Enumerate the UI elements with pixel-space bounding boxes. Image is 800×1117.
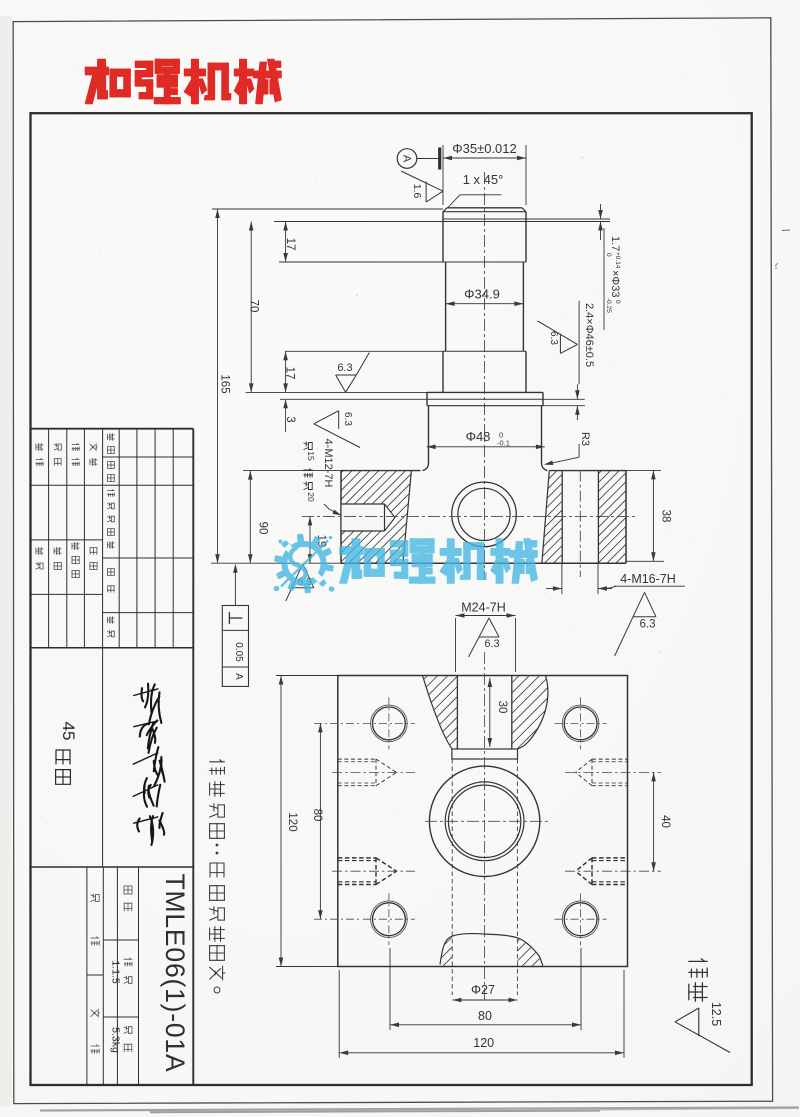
- svg-text:+0.14: +0.14: [614, 252, 621, 269]
- svg-text:×Φ33: ×Φ33: [609, 270, 621, 297]
- svg-text:20: 20: [306, 492, 316, 502]
- svg-text:90: 90: [257, 522, 269, 535]
- svg-text:-0.25: -0.25: [605, 298, 612, 313]
- svg-text:-0.1: -0.1: [497, 439, 510, 448]
- svg-text:30: 30: [496, 701, 508, 714]
- svg-text:45: 45: [59, 722, 78, 741]
- svg-text:M24-7H: M24-7H: [461, 601, 505, 615]
- svg-text:2.4×Φ46±0.5: 2.4×Φ46±0.5: [583, 303, 595, 367]
- svg-text:80: 80: [311, 809, 323, 822]
- svg-text:165: 165: [219, 374, 231, 393]
- svg-text:3: 3: [284, 416, 296, 422]
- svg-text:6.3: 6.3: [337, 362, 352, 374]
- svg-text:0: 0: [614, 300, 621, 304]
- svg-text:15: 15: [306, 451, 316, 461]
- svg-text:1:1.5: 1:1.5: [110, 960, 122, 984]
- svg-text:120: 120: [473, 1036, 494, 1050]
- svg-text:70: 70: [248, 300, 260, 313]
- svg-text:Φ27: Φ27: [471, 983, 495, 997]
- svg-text:1 x 45°: 1 x 45°: [463, 172, 504, 187]
- svg-text:17: 17: [284, 238, 296, 251]
- svg-text:4-M12-7H: 4-M12-7H: [322, 439, 334, 488]
- svg-text:0.05: 0.05: [233, 642, 244, 662]
- svg-text:1.6: 1.6: [411, 184, 423, 199]
- svg-text:6.3: 6.3: [342, 412, 353, 426]
- svg-text:TMLE06(1)-01A: TMLE06(1)-01A: [160, 874, 190, 1073]
- svg-text:0: 0: [605, 253, 612, 257]
- svg-text:R3: R3: [579, 432, 591, 446]
- svg-text:38: 38: [660, 510, 672, 523]
- svg-text:1.7: 1.7: [609, 236, 621, 251]
- svg-text:17: 17: [284, 367, 296, 380]
- svg-text:6.3: 6.3: [548, 331, 559, 345]
- svg-text:120: 120: [286, 812, 298, 831]
- svg-text:12.5: 12.5: [709, 1002, 723, 1026]
- svg-text:6.3: 6.3: [484, 638, 499, 650]
- svg-text:80: 80: [478, 1009, 492, 1023]
- svg-text:A: A: [401, 155, 413, 163]
- svg-text:4-M16-7H: 4-M16-7H: [620, 572, 676, 586]
- svg-text:Φ48: Φ48: [466, 429, 491, 444]
- svg-text:A: A: [233, 673, 244, 680]
- svg-text:6.3: 6.3: [640, 618, 656, 630]
- svg-text:5.3kg: 5.3kg: [110, 1027, 122, 1053]
- svg-text:40: 40: [659, 815, 671, 828]
- svg-text:Φ34.9: Φ34.9: [464, 287, 500, 302]
- svg-text:Φ35±0.012: Φ35±0.012: [452, 141, 517, 156]
